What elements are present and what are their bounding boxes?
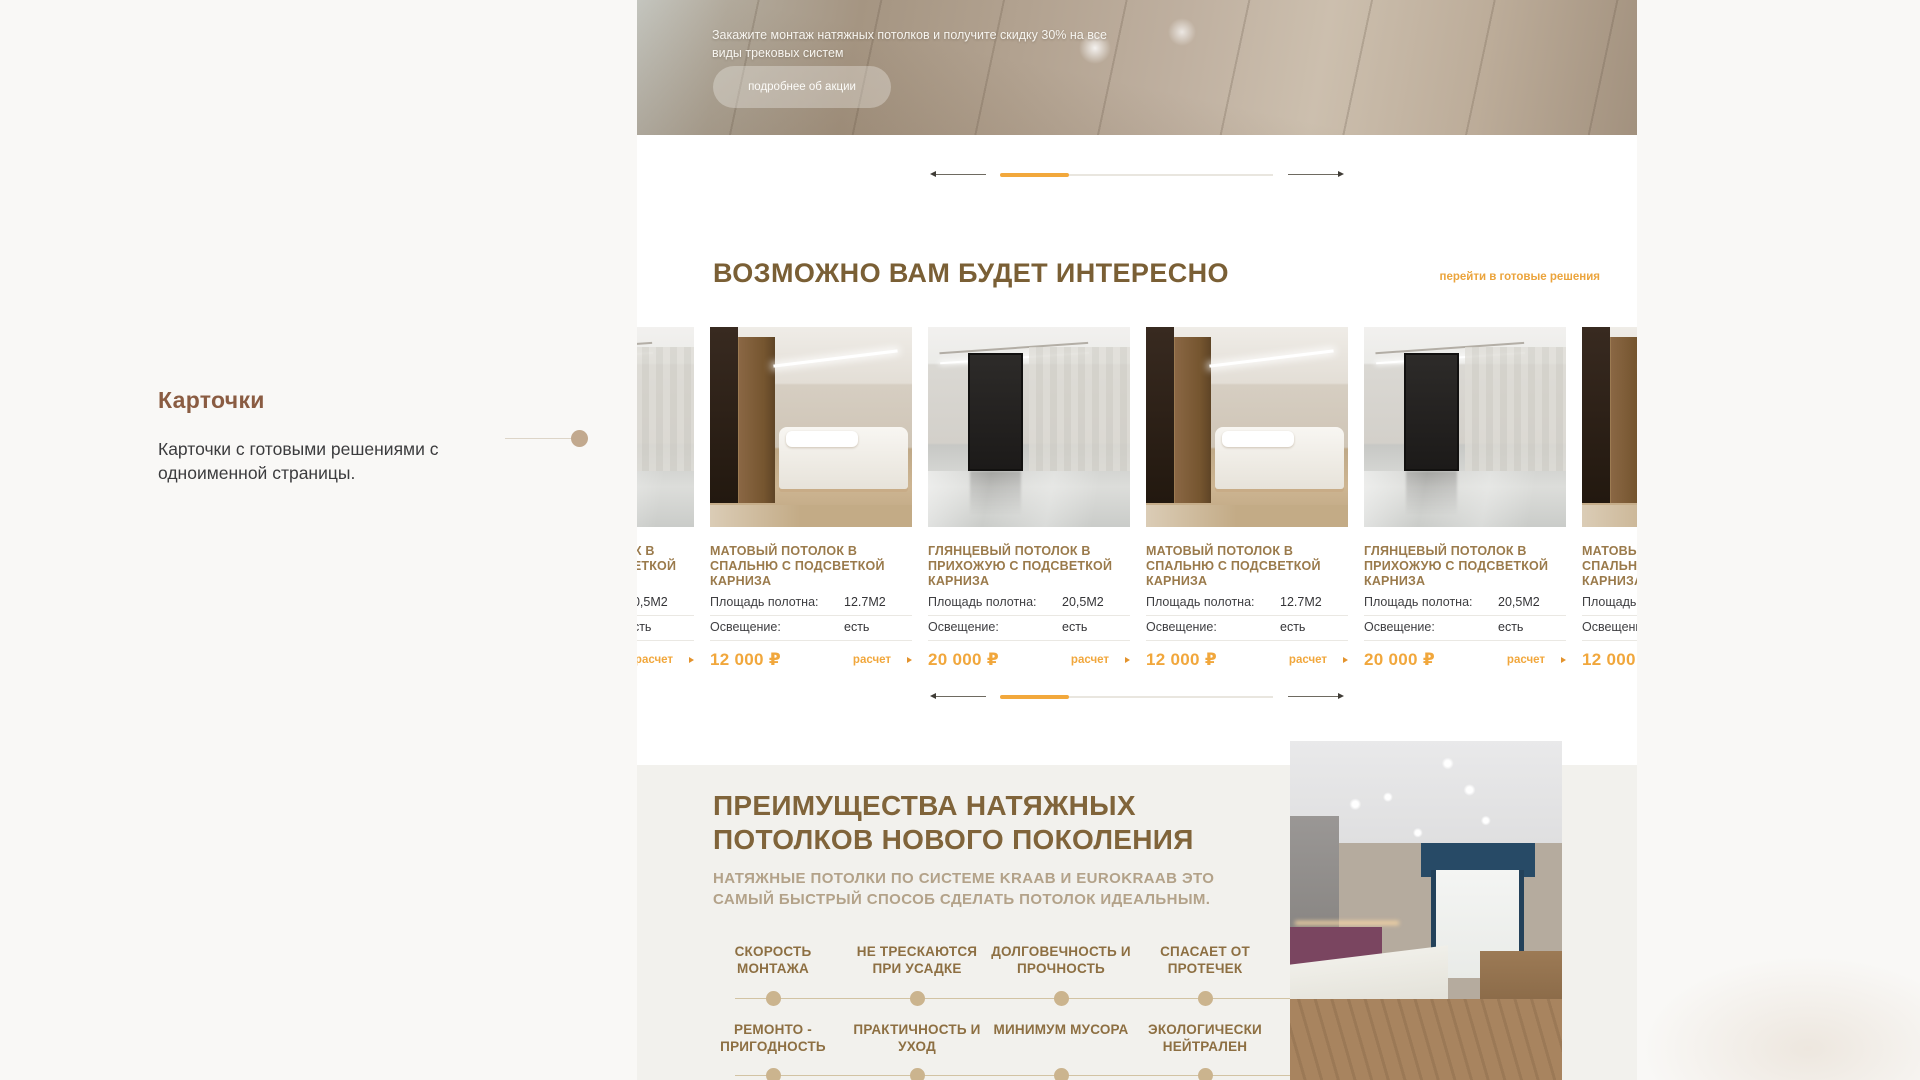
bedroom-photo: [1290, 741, 1562, 1080]
spec-row-light: Освещение: есть: [710, 616, 912, 641]
spec-light-value: есть: [1062, 620, 1130, 634]
spec-light-label: Освещение:: [710, 620, 844, 634]
spec-light-label: Освещение:: [1146, 620, 1280, 634]
card-price-row: 20 000 ₽ расчет: [637, 650, 694, 667]
card-price: 20 000 ₽: [1364, 650, 1435, 667]
solution-card[interactable]: ГЛЯНЦЕВЫЙ ПОТОЛОК В ПРИХОЖУЮ С ПОДСВЕТКО…: [928, 327, 1130, 667]
calc-link[interactable]: расчет: [853, 654, 912, 666]
benefit-feature: ДОЛГОВЕЧНОСТЬ И ПРОЧНОСТЬ: [989, 943, 1133, 977]
hero-promo-text: Закажите монтаж натяжных потолков и полу…: [712, 26, 1107, 62]
benefits-subtitle: НАТЯЖНЫЕ ПОТОЛКИ ПО СИСТЕМЕ KRAAB И EURO…: [713, 868, 1214, 910]
calc-link[interactable]: расчет: [1071, 654, 1130, 666]
spec-row-light: Освещение: есть: [1146, 616, 1348, 641]
benefits-row-2: РЕМОНТО - ПРИГОДНОСТЬПРАКТИЧНОСТЬ И УХОД…: [701, 1021, 1277, 1055]
card-price-row: 12 000 ₽ расчет: [710, 650, 912, 667]
spec-area-value: 12.7М2: [1280, 595, 1348, 609]
carousel-track-line: [1069, 696, 1273, 698]
timeline-dot: [910, 1068, 925, 1080]
spec-row-area: Площадь полотна: 20,5М2: [637, 591, 694, 616]
benefit-feature: ЭКОЛОГИЧЕСКИ НЕЙТРАЛЕН: [1133, 1021, 1277, 1055]
timeline-dot: [766, 991, 781, 1006]
timeline-dot: [766, 1068, 781, 1080]
spec-light-value: есть: [637, 620, 694, 634]
carousel-active-indicator: [1000, 173, 1069, 177]
benefit-feature: СПАСАЕТ ОТ ПРОТЕЧЕК: [1133, 943, 1277, 977]
spec-area-value: 20,5М2: [637, 595, 694, 609]
timeline-dot: [1198, 991, 1213, 1006]
timeline-dot: [1198, 1068, 1213, 1080]
timeline-dot: [910, 991, 925, 1006]
hero-carousel-pagination: [637, 168, 1637, 182]
spec-row-area: Площадь полотна: 20,5М2: [928, 591, 1130, 616]
spec-area-label: Площадь полотна:: [928, 595, 1062, 609]
arrow-right-icon: [1125, 657, 1130, 663]
carousel-next-arrow[interactable]: [1288, 691, 1344, 703]
wood-floor: [1290, 999, 1562, 1080]
card-price: 20 000 ₽: [928, 650, 999, 667]
calc-link[interactable]: расчет: [637, 654, 694, 666]
card-price-row: 12 000 ₽ расчет: [1146, 650, 1348, 667]
card-price: 12 000 ₽: [1146, 650, 1217, 667]
card-price: 12 000 ₽: [710, 650, 781, 667]
benefit-feature: СКОРОСТЬ МОНТАЖА: [701, 943, 845, 977]
card-title: МАТОВЫЙ ПОТОЛОК В СПАЛЬНЮ С ПОДСВЕТКОЙ К…: [1582, 544, 1637, 591]
spec-area-value: 20,5М2: [1498, 595, 1566, 609]
led-cove-light: [1295, 921, 1398, 925]
arrow-right-icon: [689, 657, 694, 663]
section-title-interesting: ВОЗМОЖНО ВАМ БУДЕТ ИНТЕРЕСНО: [713, 258, 1229, 289]
benefit-feature: РЕМОНТО - ПРИГОДНОСТЬ: [701, 1021, 845, 1055]
carousel-prev-arrow[interactable]: [930, 169, 986, 181]
annotation-connector-line: [505, 438, 573, 439]
card-title: МАТОВЫЙ ПОТОЛОК В СПАЛЬНЮ С ПОДСВЕТКОЙ К…: [1146, 544, 1348, 591]
card-title: ГЛЯНЦЕВЫЙ ПОТОЛОК В ПРИХОЖУЮ С ПОДСВЕТКО…: [928, 544, 1130, 591]
card-price-row: 20 000 ₽ расчет: [1364, 650, 1566, 667]
arrow-right-icon: [907, 657, 912, 663]
annotation-description: Карточки с готовыми решениями с одноимен…: [158, 437, 493, 485]
card-title: МАТОВЫЙ ПОТОЛОК В СПАЛЬНЮ С ПОДСВЕТКОЙ К…: [710, 544, 912, 591]
spec-light-label: Освещение:: [1364, 620, 1498, 634]
spec-area-label: Площадь полотна:: [1364, 595, 1498, 609]
card-photo: [1582, 327, 1637, 527]
benefit-feature: МИНИМУМ МУСОРА: [989, 1021, 1133, 1055]
spec-row-area: Площадь полотна: 12.7М2: [1582, 591, 1637, 616]
spec-area-label: Площадь полотна:: [710, 595, 844, 609]
benefit-feature: НЕ ТРЕСКАЮТСЯ ПРИ УСАДКЕ: [845, 943, 989, 977]
solutions-carousel: ГЛЯНЦЕВЫЙ ПОТОЛОК В ПРИХОЖУЮ С ПОДСВЕТКО…: [637, 327, 1637, 667]
spec-area-label: Площадь полотна:: [1582, 595, 1637, 609]
calc-link[interactable]: расчет: [1289, 654, 1348, 666]
spec-row-light: Освещение: есть: [928, 616, 1130, 641]
timeline-dot: [1054, 1068, 1069, 1080]
spec-light-value: есть: [844, 620, 912, 634]
solution-card[interactable]: МАТОВЫЙ ПОТОЛОК В СПАЛЬНЮ С ПОДСВЕТКОЙ К…: [1582, 327, 1637, 667]
timeline-dot: [1054, 991, 1069, 1006]
spec-row-light: Освещение: есть: [1582, 616, 1637, 641]
calc-link[interactable]: расчет: [1507, 654, 1566, 666]
spec-area-value: 12.7М2: [844, 595, 912, 609]
spec-light-value: есть: [1280, 620, 1348, 634]
card-price-row: 12 000 ₽ расчет: [1582, 650, 1637, 667]
carousel-next-arrow[interactable]: [1288, 169, 1344, 181]
solution-card[interactable]: МАТОВЫЙ ПОТОЛОК В СПАЛЬНЮ С ПОДСВЕТКОЙ К…: [710, 327, 912, 667]
spec-row-light: Освещение: есть: [1364, 616, 1566, 641]
card-title: ГЛЯНЦЕВЫЙ ПОТОЛОК В ПРИХОЖУЮ С ПОДСВЕТКО…: [1364, 544, 1566, 591]
design-page-canvas: Карточки Карточки с готовыми решениями с…: [0, 0, 1920, 1080]
card-price-row: 20 000 ₽ расчет: [928, 650, 1130, 667]
card-title: ГЛЯНЦЕВЫЙ ПОТОЛОК В ПРИХОЖУЮ С ПОДСВЕТКО…: [637, 544, 694, 591]
goto-ready-solutions-link[interactable]: перейти в готовые решения: [1440, 271, 1600, 283]
spec-light-label: Освещение:: [928, 620, 1062, 634]
card-price: 12 000 ₽: [1582, 650, 1637, 667]
spec-area-value: 20,5М2: [1062, 595, 1130, 609]
arrow-right-icon: [1561, 657, 1566, 663]
spec-row-area: Площадь полотна: 12.7М2: [710, 591, 912, 616]
carousel-prev-arrow[interactable]: [930, 691, 986, 703]
spec-row-area: Площадь полотна: 20,5М2: [1364, 591, 1566, 616]
spec-row-light: Освещение: есть: [637, 616, 694, 641]
spec-light-label: Освещение:: [1582, 620, 1637, 634]
card-photo: [928, 327, 1130, 527]
benefit-feature: ПРАКТИЧНОСТЬ И УХОД: [845, 1021, 989, 1055]
benefits-row-1: СКОРОСТЬ МОНТАЖАНЕ ТРЕСКАЮТСЯ ПРИ УСАДКЕ…: [701, 943, 1277, 977]
card-photo: [1364, 327, 1566, 527]
solution-card[interactable]: МАТОВЫЙ ПОТОЛОК В СПАЛЬНЮ С ПОДСВЕТКОЙ К…: [1146, 327, 1348, 667]
spec-area-label: Площадь полотна:: [1146, 595, 1280, 609]
benefits-title: ПРЕИМУЩЕСТВА НАТЯЖНЫХ ПОТОЛКОВ НОВОГО ПО…: [713, 789, 1194, 857]
card-photo: [1146, 327, 1348, 527]
spec-row-area: Площадь полотна: 12.7М2: [1146, 591, 1348, 616]
spec-light-value: есть: [1498, 620, 1566, 634]
annotation-title: Карточки: [158, 387, 265, 414]
hero-banner: Закажите монтаж натяжных потолков и полу…: [637, 0, 1637, 135]
watermark-blob: [1640, 955, 1920, 1080]
arrow-right-icon: [1343, 657, 1348, 663]
promo-details-button[interactable]: подробнее об акции: [713, 66, 891, 108]
carousel-track-line: [1069, 174, 1273, 176]
card-photo: [710, 327, 912, 527]
cards-carousel-pagination: [637, 690, 1637, 704]
carousel-active-indicator: [1000, 695, 1069, 699]
card-photo: [637, 327, 694, 527]
solution-card[interactable]: ГЛЯНЦЕВЫЙ ПОТОЛОК В ПРИХОЖУЮ С ПОДСВЕТКО…: [637, 327, 694, 667]
arrow-right-icon: [1338, 171, 1344, 177]
carousel-cards-track: ГЛЯНЦЕВЫЙ ПОТОЛОК В ПРИХОЖУЮ С ПОДСВЕТКО…: [637, 327, 1637, 667]
arrow-right-icon: [1338, 693, 1344, 699]
annotation-connector-dot: [571, 430, 588, 447]
solution-card[interactable]: ГЛЯНЦЕВЫЙ ПОТОЛОК В ПРИХОЖУЮ С ПОДСВЕТКО…: [1364, 327, 1566, 667]
